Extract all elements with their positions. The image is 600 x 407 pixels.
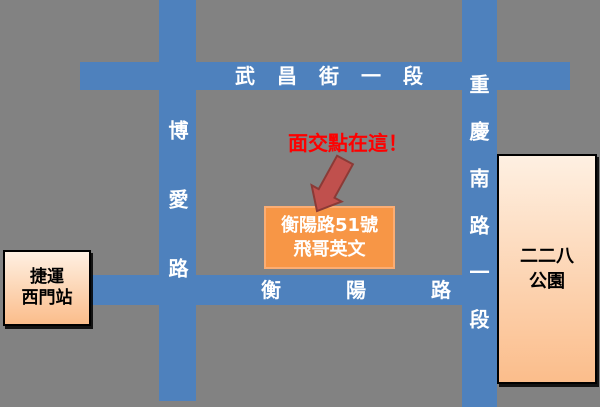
park-box: 二二八 公園 — [497, 154, 597, 384]
meeting-point-arrow-icon — [300, 150, 360, 220]
destination-name: 飛哥英文 — [294, 238, 366, 262]
park-label-line2: 公園 — [529, 269, 565, 294]
road-band-wuchang — [80, 62, 570, 90]
road-band-hengyang — [60, 275, 462, 305]
mrt-station-label-line1: 捷運 — [30, 267, 64, 288]
mrt-station-box: 捷運 西門站 — [3, 250, 91, 326]
mrt-station-label-line2: 西門站 — [22, 288, 73, 309]
map-canvas: 武昌街一段 衡陽路 博愛路 重慶南路一段 捷運 西門站 二二八 公園 衡陽路51… — [0, 0, 600, 407]
road-band-boai — [159, 0, 196, 401]
park-label-line1: 二二八 — [520, 244, 574, 269]
